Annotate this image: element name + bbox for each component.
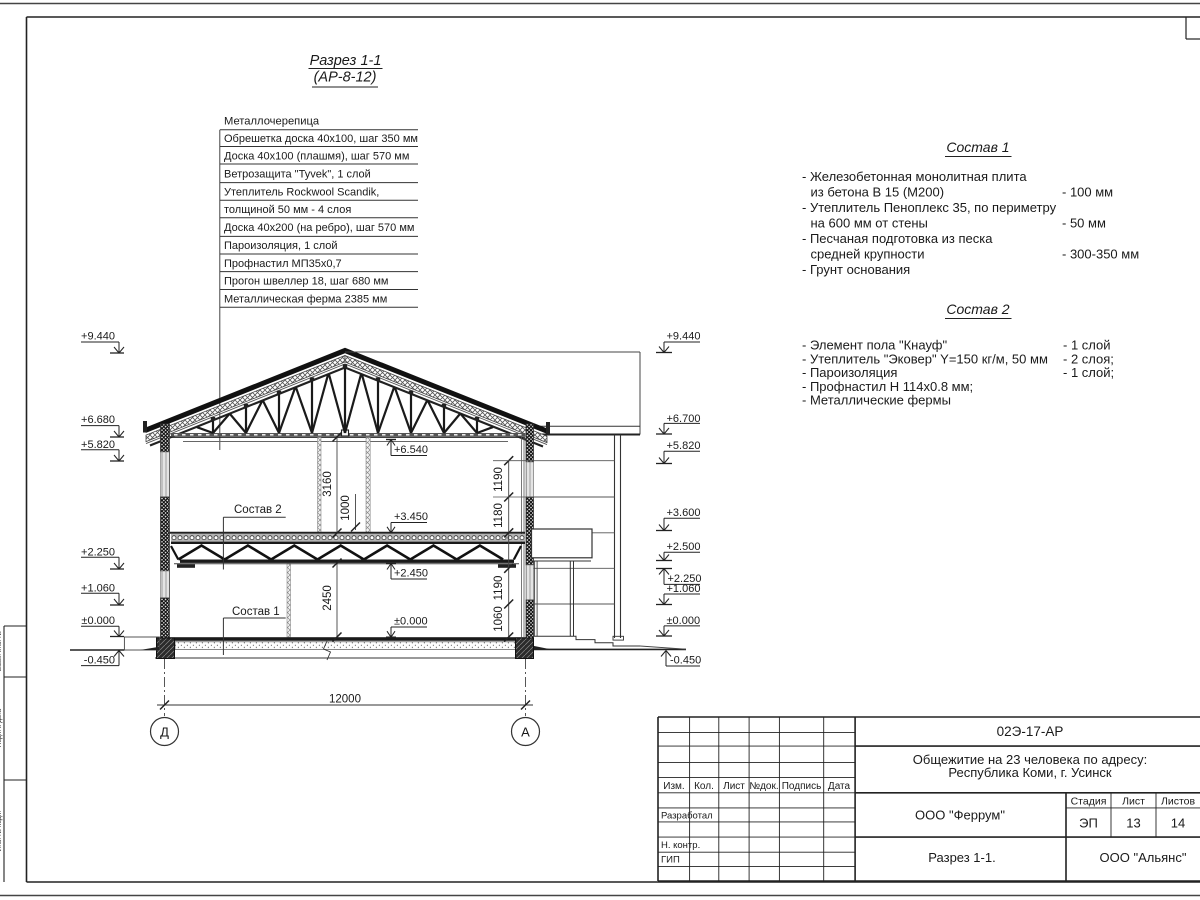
svg-text:Металлическая ферма 2385 мм: Металлическая ферма 2385 мм [224, 293, 387, 305]
svg-text:- Металлические фермы: - Металлические фермы [802, 393, 951, 408]
svg-text:Взам. инв. №: Взам. инв. № [0, 631, 3, 671]
svg-text:- Утеплитель Пеноплекс 35, по: - Утеплитель Пеноплекс 35, по периметру [802, 200, 1057, 215]
svg-text:Ветрозащита "Tyvek", 1 слой: Ветрозащита "Tyvek", 1 слой [224, 168, 371, 180]
svg-text:1060: 1060 [493, 606, 505, 632]
svg-text:Изм.: Изм. [663, 781, 684, 792]
svg-text:- 1 слой: - 1 слой [1063, 338, 1111, 353]
svg-text:+2.250: +2.250 [81, 547, 115, 559]
svg-text:- Пароизоляция: - Пароизоляция [802, 365, 897, 380]
svg-text:Разрез 1-1.: Разрез 1-1. [928, 850, 995, 865]
svg-text:- Грунт основания: - Грунт основания [802, 262, 910, 277]
svg-text:- Железобетонная монолитная п: - Железобетонная монолитная плита [802, 169, 1027, 184]
svg-text:Доска 40х100 (плашмя), шаг 570: Доска 40х100 (плашмя), шаг 570 мм [224, 150, 409, 162]
svg-text:на 600 мм от стены: на 600 мм от стены [811, 216, 928, 231]
svg-text:-0.450: -0.450 [84, 655, 115, 667]
svg-text:+9.440: +9.440 [667, 331, 701, 343]
svg-text:Инв. № подл.: Инв. № подл. [0, 811, 3, 852]
svg-text:2450: 2450 [322, 585, 334, 611]
svg-text:Лист: Лист [723, 781, 745, 792]
svg-text:3160: 3160 [322, 471, 334, 497]
svg-text:Стадия: Стадия [1071, 796, 1107, 808]
svg-text:- 50 мм: - 50 мм [1062, 216, 1106, 231]
svg-text:А: А [521, 725, 530, 740]
svg-text:1000: 1000 [340, 495, 352, 521]
svg-text:+5.820: +5.820 [667, 440, 701, 452]
svg-text:Листов: Листов [1161, 796, 1196, 808]
svg-text:Дата: Дата [828, 781, 851, 792]
svg-text:Лист: Лист [1122, 796, 1145, 808]
svg-text:ООО "Альянс": ООО "Альянс" [1100, 850, 1187, 865]
svg-text:средней крупности: средней крупности [811, 247, 925, 262]
svg-text:Состав 2: Состав 2 [946, 301, 1009, 317]
svg-text:№док.: №док. [749, 781, 778, 792]
svg-text:1180: 1180 [493, 503, 505, 528]
svg-text:Состав 1: Состав 1 [232, 606, 280, 618]
svg-text:- 300-350 мм: - 300-350 мм [1062, 247, 1139, 262]
svg-text:ГИП: ГИП [661, 855, 680, 866]
svg-text:±0.000: ±0.000 [81, 615, 115, 627]
svg-text:12000: 12000 [329, 694, 361, 706]
svg-text:Утеплитель Rockwool Scandik,: Утеплитель Rockwool Scandik, [224, 186, 379, 198]
svg-text:- 100 мм: - 100 мм [1062, 185, 1113, 200]
svg-text:+3.600: +3.600 [667, 507, 701, 519]
svg-text:Металлочерепица: Металлочерепица [224, 116, 320, 128]
svg-text:ООО "Феррум": ООО "Феррум" [915, 808, 1005, 823]
svg-text:1190: 1190 [493, 576, 505, 601]
svg-text:Разработал: Разработал [661, 811, 713, 822]
svg-text:ЭП: ЭП [1079, 816, 1098, 831]
svg-text:+1.060: +1.060 [81, 583, 115, 595]
svg-text:- Песчаная подготовка из песка: - Песчаная подготовка из песка [802, 231, 993, 246]
svg-text:+2.450: +2.450 [394, 568, 428, 580]
svg-text:+9.440: +9.440 [81, 331, 115, 343]
svg-text:Республика Коми, г. Усинск: Республика Коми, г. Усинск [948, 765, 1111, 780]
svg-text:±0.000: ±0.000 [394, 616, 428, 628]
svg-text:Профнастил МП35х0,7: Профнастил МП35х0,7 [224, 258, 342, 270]
svg-text:+6.680: +6.680 [81, 414, 115, 426]
svg-text:Н. контр.: Н. контр. [661, 840, 700, 851]
svg-text:13: 13 [1126, 816, 1140, 831]
svg-text:(АР-8-12): (АР-8-12) [314, 70, 377, 86]
svg-text:Д: Д [160, 725, 169, 740]
svg-text:- 2 слоя;: - 2 слоя; [1063, 351, 1114, 366]
svg-text:- Элемент пола "Кнауф": - Элемент пола "Кнауф" [802, 338, 947, 353]
svg-text:02Э-17-АР: 02Э-17-АР [997, 724, 1064, 739]
svg-text:Кол.: Кол. [694, 781, 714, 792]
svg-text:Подпись: Подпись [782, 781, 822, 792]
svg-text:Состав 2: Состав 2 [234, 504, 282, 516]
svg-text:1190: 1190 [493, 467, 505, 492]
svg-text:- Профнастил Н 114х0.8 мм;: - Профнастил Н 114х0.8 мм; [802, 379, 973, 394]
svg-text:Доска 40х200 (на ребро), шаг 5: Доска 40х200 (на ребро), шаг 570 мм [224, 222, 414, 234]
svg-text:+1.060: +1.060 [667, 583, 701, 595]
svg-text:+2.500: +2.500 [667, 541, 701, 553]
svg-text:Состав 1: Состав 1 [946, 139, 1009, 155]
svg-text:14: 14 [1171, 816, 1185, 831]
svg-text:Обрешетка доска 40х100, шаг 35: Обрешетка доска 40х100, шаг 350 мм [224, 133, 418, 145]
svg-text:-0.450: -0.450 [670, 655, 701, 667]
svg-text:Прогон швеллер 18, шаг 680 мм: Прогон швеллер 18, шаг 680 мм [224, 276, 388, 288]
svg-text:+3.450: +3.450 [394, 511, 428, 523]
svg-text:Разрез 1-1: Разрез 1-1 [310, 53, 382, 69]
svg-text:±0.000: ±0.000 [667, 615, 701, 627]
svg-text:толщиной 50 мм - 4 слоя: толщиной 50 мм - 4 слоя [224, 204, 351, 216]
svg-text:+6.540: +6.540 [394, 444, 428, 456]
svg-text:Подп. и дата: Подп. и дата [0, 708, 3, 747]
svg-text:- Утеплитель "Эковер" Y=150 кг: - Утеплитель "Эковер" Y=150 кг/м, 50 мм [802, 351, 1048, 366]
svg-text:из бетона В 15 (М200): из бетона В 15 (М200) [811, 185, 945, 200]
svg-text:- 1 слой;: - 1 слой; [1063, 365, 1114, 380]
svg-text:Пароизоляция, 1 слой: Пароизоляция, 1 слой [224, 240, 338, 252]
